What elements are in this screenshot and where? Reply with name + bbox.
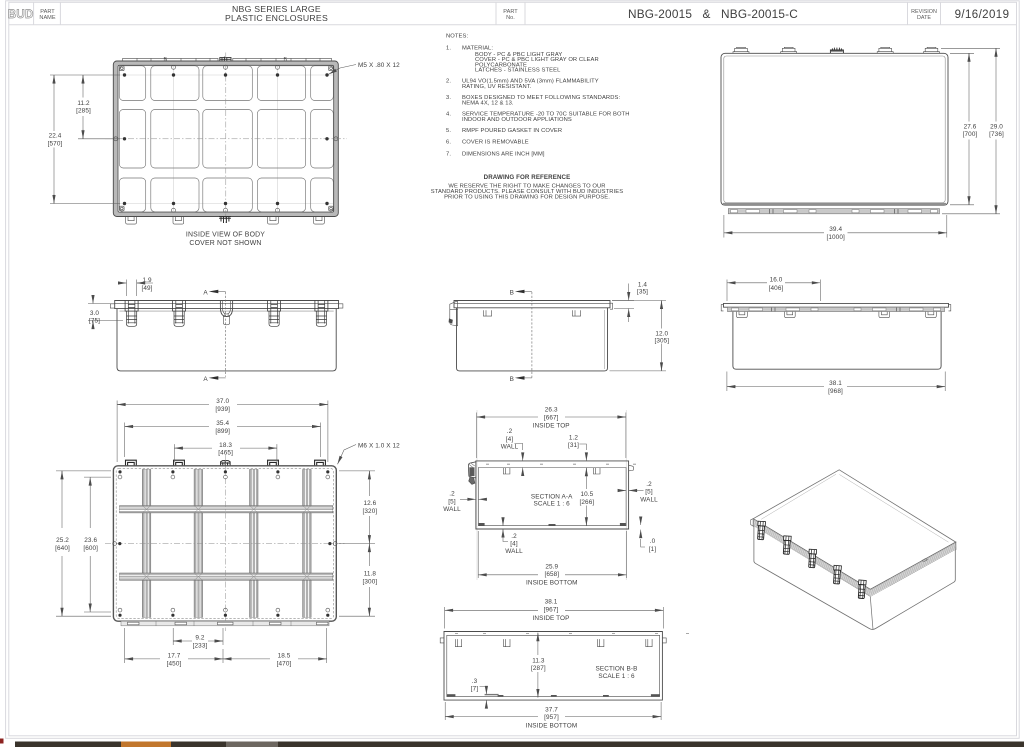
svg-text:7.: 7. [446,151,451,157]
svg-text:DRAWING FOR REFERENCE: DRAWING FOR REFERENCE [484,174,571,181]
svg-text:PART: PART [503,9,518,15]
svg-text:5.: 5. [446,128,451,134]
svg-text:9/16/2019: 9/16/2019 [955,9,1010,21]
svg-text:.2: .2 [507,428,513,435]
svg-text:DATE: DATE [917,15,931,21]
svg-text:REVISION: REVISION [911,9,937,15]
svg-text:1.2: 1.2 [569,434,579,441]
svg-text:37.7: 37.7 [545,706,558,713]
svg-text:[31]: [31] [568,442,579,449]
svg-text:[968]: [968] [828,388,843,395]
svg-text:[470]: [470] [277,660,292,667]
svg-text:COVER IS REMOVABLE: COVER IS REMOVABLE [462,140,529,146]
svg-text:RMPF POURED GASKET IN COVER: RMPF POURED GASKET IN COVER [462,128,562,134]
svg-text:[49]: [49] [142,285,153,292]
svg-text:PLASTIC ENCLOSURES: PLASTIC ENCLOSURES [225,13,328,23]
svg-text:[700]: [700] [963,131,978,138]
svg-text:25.2: 25.2 [56,537,69,544]
svg-text:DIMENSIONS ARE INCH [MM]: DIMENSIONS ARE INCH [MM] [462,151,545,157]
svg-text:9.2: 9.2 [195,635,205,642]
svg-text:No.: No. [506,15,515,21]
svg-text:1.9: 1.9 [143,277,153,284]
svg-text:39.4: 39.4 [829,226,842,233]
svg-text:38.1: 38.1 [829,380,842,387]
svg-text:1.: 1. [446,45,451,51]
svg-text:17.7: 17.7 [168,653,181,660]
svg-text:18.3: 18.3 [219,442,232,449]
svg-text:SCALE 1 : 6: SCALE 1 : 6 [534,501,571,508]
svg-text:10.5: 10.5 [580,491,593,498]
svg-text:[7]: [7] [471,686,479,693]
svg-text:PART: PART [40,9,55,15]
svg-text:LATCHES - STAINLESS STEEL: LATCHES - STAINLESS STEEL [475,68,561,74]
svg-text:[939]: [939] [215,406,230,413]
svg-text:A: A [203,376,208,383]
svg-text:[957]: [957] [544,714,559,721]
svg-text:PRIOR TO USING THIS DRAWING FO: PRIOR TO USING THIS DRAWING FOR DESIGN P… [444,194,610,200]
svg-text:[658]: [658] [544,571,559,578]
svg-text:[4]: [4] [510,541,518,548]
svg-text:M6 X 1.0 X 12: M6 X 1.0 X 12 [358,442,400,449]
svg-text:3.0: 3.0 [90,310,100,317]
svg-text:[667]: [667] [544,414,559,421]
svg-text:[287]: [287] [531,665,546,672]
svg-text:M5 X .80 X 12: M5 X .80 X 12 [358,62,400,69]
svg-text:29.0: 29.0 [990,123,1003,130]
svg-text:SECTION A-A: SECTION A-A [531,494,573,501]
svg-text:[35]: [35] [637,289,648,296]
svg-text:INSIDE BOTTOM: INSIDE BOTTOM [526,723,578,730]
svg-text:INSIDE VIEW OF BODY: INSIDE VIEW OF BODY [186,232,265,239]
svg-text:NOTES:: NOTES: [446,34,468,40]
svg-text:.3: .3 [472,678,478,685]
svg-text:25.9: 25.9 [545,563,558,570]
svg-text:[450]: [450] [167,660,182,667]
svg-text:12.0: 12.0 [655,330,668,337]
svg-text:NEMA 4X, 12 & 13.: NEMA 4X, 12 & 13. [462,101,514,107]
svg-text:2.: 2. [446,79,451,85]
svg-text:.2: .2 [511,533,517,540]
svg-text:11.8: 11.8 [364,571,377,578]
svg-text:[967]: [967] [544,607,559,614]
svg-text:38.1: 38.1 [545,599,558,606]
svg-text:[5]: [5] [448,498,456,505]
svg-text:B: B [510,376,514,383]
svg-text:23.6: 23.6 [84,537,97,544]
svg-text:3.: 3. [446,95,451,101]
svg-text:11.2: 11.2 [77,100,90,107]
svg-text:[320]: [320] [363,508,378,515]
svg-text:BUD: BUD [8,9,34,21]
svg-text:.0: .0 [650,538,656,545]
svg-text:16.0: 16.0 [770,277,783,284]
svg-text:35.4: 35.4 [216,420,229,427]
svg-text:1.4: 1.4 [638,282,648,289]
svg-text:NAME: NAME [39,15,55,21]
svg-text:[4]: [4] [506,436,514,443]
svg-text:SECTION B-B: SECTION B-B [596,666,638,673]
svg-text:18.5: 18.5 [278,653,291,660]
svg-text:B: B [510,290,514,297]
svg-text:RATING, UV RESISTANT.: RATING, UV RESISTANT. [462,84,532,90]
svg-text:11.3: 11.3 [532,657,545,664]
svg-text:[305]: [305] [654,338,669,345]
svg-text:[465]: [465] [218,450,233,457]
svg-text:SCALE 1 : 6: SCALE 1 : 6 [598,673,635,680]
svg-text:COVER NOT SHOWN: COVER NOT SHOWN [189,240,261,247]
svg-text:4.: 4. [446,112,451,118]
svg-text:WALL: WALL [640,496,658,503]
svg-text:[899]: [899] [215,428,230,435]
svg-text:.2: .2 [646,481,652,488]
svg-text:[266]: [266] [580,499,595,506]
svg-text:NBG-20015 & NBG-20015-C: NBG-20015 & NBG-20015-C [628,7,798,21]
svg-text:12.6: 12.6 [363,500,376,507]
svg-text:[75]: [75] [89,317,100,324]
svg-text:A: A [203,290,208,297]
svg-text:[285]: [285] [76,108,91,115]
svg-text:[640]: [640] [55,545,70,552]
svg-text:[570]: [570] [48,140,63,147]
svg-text:[1]: [1] [649,546,657,553]
svg-text:[300]: [300] [363,578,378,585]
svg-text:MATERIAL:: MATERIAL: [462,45,493,51]
svg-text:WALL: WALL [501,444,519,451]
svg-text:INSIDE TOP: INSIDE TOP [533,422,570,429]
svg-text:WALL: WALL [443,506,461,513]
svg-text:[600]: [600] [83,545,98,552]
svg-text:[406]: [406] [769,285,784,292]
svg-text:[5]: [5] [645,489,653,496]
svg-text:[1000]: [1000] [827,234,845,241]
svg-text:27.6: 27.6 [964,123,977,130]
svg-text:26.3: 26.3 [545,407,558,414]
svg-text:WALL: WALL [505,548,523,555]
svg-text:37.0: 37.0 [216,398,229,405]
svg-text:INSIDE BOTTOM: INSIDE BOTTOM [526,580,578,587]
svg-text:INDOOR AND OUTDOOR APPLIATIONS: INDOOR AND OUTDOOR APPLIATIONS [462,117,572,123]
svg-text:[233]: [233] [193,642,208,649]
svg-text:[736]: [736] [989,131,1004,138]
svg-text:6.: 6. [446,140,451,146]
svg-text:.2: .2 [449,491,455,498]
svg-text:22.4: 22.4 [49,133,62,140]
svg-text:INSIDE TOP: INSIDE TOP [533,615,570,622]
